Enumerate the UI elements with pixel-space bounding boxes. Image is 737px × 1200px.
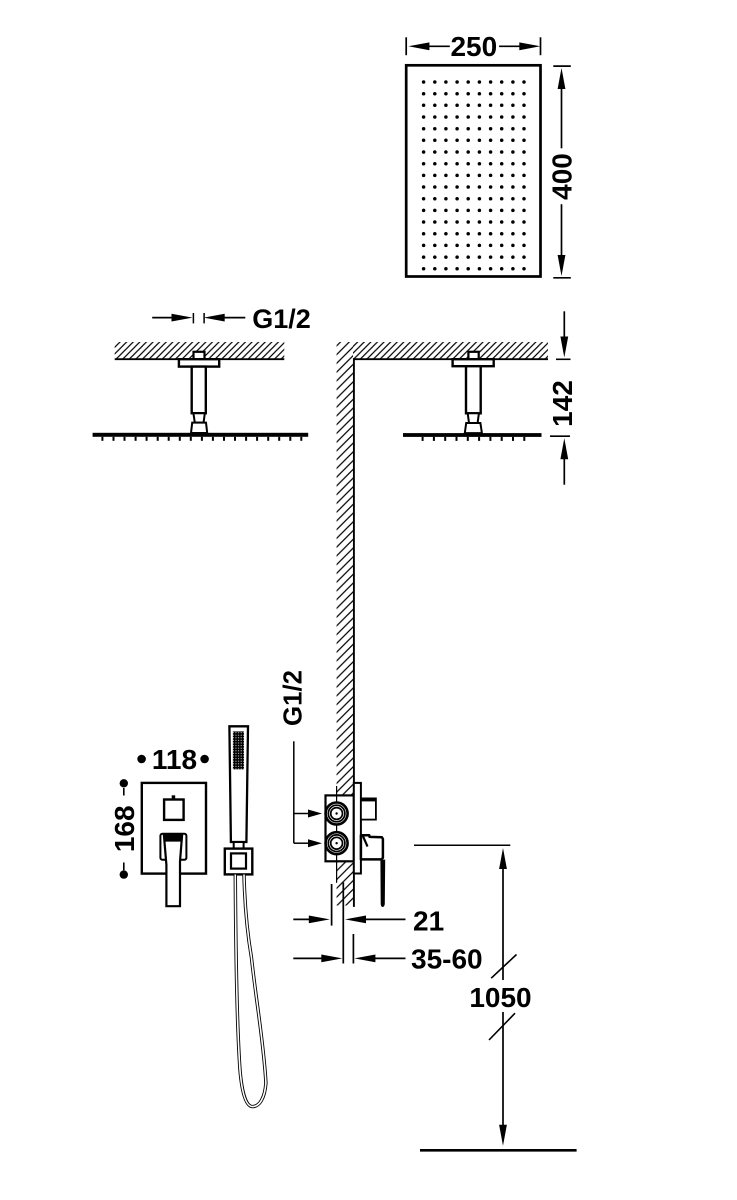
svg-text:118: 118 (152, 744, 197, 775)
svg-text:21: 21 (413, 906, 444, 937)
svg-text:400: 400 (547, 153, 578, 200)
svg-text:1050: 1050 (469, 982, 531, 1013)
svg-text:142: 142 (547, 380, 578, 427)
svg-text:250: 250 (450, 31, 497, 62)
svg-text:35-60: 35-60 (411, 944, 483, 975)
svg-text:G1/2: G1/2 (279, 670, 307, 726)
svg-text:G1/2: G1/2 (252, 304, 311, 334)
svg-text:168: 168 (109, 805, 140, 852)
